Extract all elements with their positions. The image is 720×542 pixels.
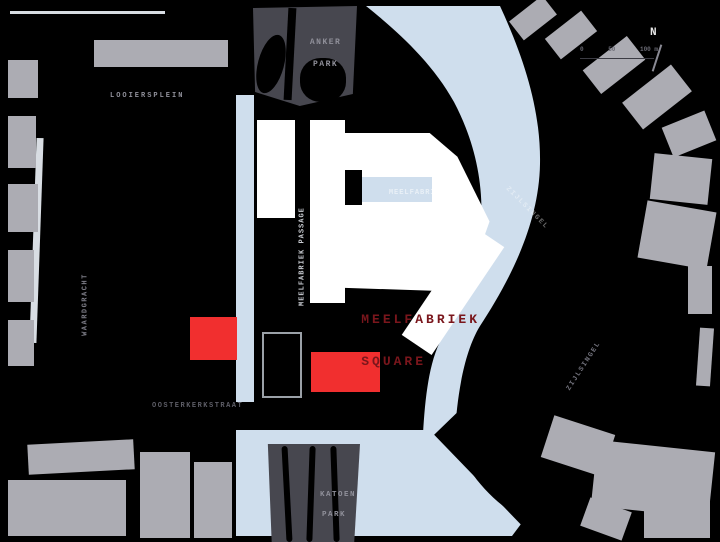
meelfabriek-square-label-line1: MEELFABRIEK: [361, 312, 480, 327]
building: [644, 498, 710, 538]
highlight-building-west: [190, 317, 237, 360]
katoen-park-label-line2: PARK: [322, 511, 346, 519]
waardgracht-label: WAARDGRACHT: [81, 265, 90, 345]
meelfabriekplein-label-line1: MEELFABRIEK: [389, 189, 446, 197]
katoen-park-label-line1: KATOEN: [320, 491, 356, 499]
building: [140, 452, 190, 538]
meelfabriekplein-label-line2: PLEIN: [389, 207, 415, 215]
oosterkerkstraat-label: OOSTERKERKSTRAAT: [152, 402, 243, 411]
courtyard-cut: [345, 170, 362, 205]
building: [8, 60, 38, 98]
building: [94, 40, 228, 67]
meelfabriekplein-label: MEELFABRIEK PLEIN: [368, 180, 446, 225]
outlined-building: [262, 332, 302, 398]
anker-park-label: ANKER PARK: [283, 26, 343, 81]
scale-tick-100: 100 m: [640, 46, 658, 53]
scale-bar: 0 50 100 m: [580, 46, 658, 59]
meelfabriek-building-west: [257, 120, 295, 218]
building: [8, 116, 36, 168]
meelfabriek-square-label: MEELFABRIEK SQUARE: [318, 288, 480, 393]
building: [8, 320, 34, 366]
site-plan-map: ANKER PARK LOOIERSPLEIN WAARDGRACHT MEEL…: [0, 0, 720, 542]
looiersplein-label: LOOIERSPLEIN: [110, 92, 184, 101]
anker-park-label-line1: ANKER: [310, 38, 342, 47]
building: [650, 153, 712, 205]
building: [8, 184, 38, 232]
anker-park-label-line2: PARK: [313, 60, 338, 69]
canal-vertical: [236, 95, 254, 402]
meelfabriek-building-center: [310, 120, 345, 303]
meelfabriek-square-label-line2: SQUARE: [361, 354, 426, 369]
building: [688, 266, 712, 314]
building: [8, 250, 34, 302]
compass-north-label: N: [650, 26, 658, 40]
scale-tick-50: 50: [608, 46, 615, 53]
building: [194, 462, 232, 538]
building: [27, 439, 134, 475]
building: [8, 480, 126, 536]
quay-edge-line: [10, 11, 165, 14]
scale-tick-0: 0: [580, 46, 584, 53]
scale-bar-line: [580, 58, 654, 59]
katoen-park-label: KATOEN PARK: [296, 480, 348, 530]
building: [637, 200, 716, 269]
meelfabriek-passage-label: MEELFABRIEK PASSAGE: [298, 199, 307, 315]
